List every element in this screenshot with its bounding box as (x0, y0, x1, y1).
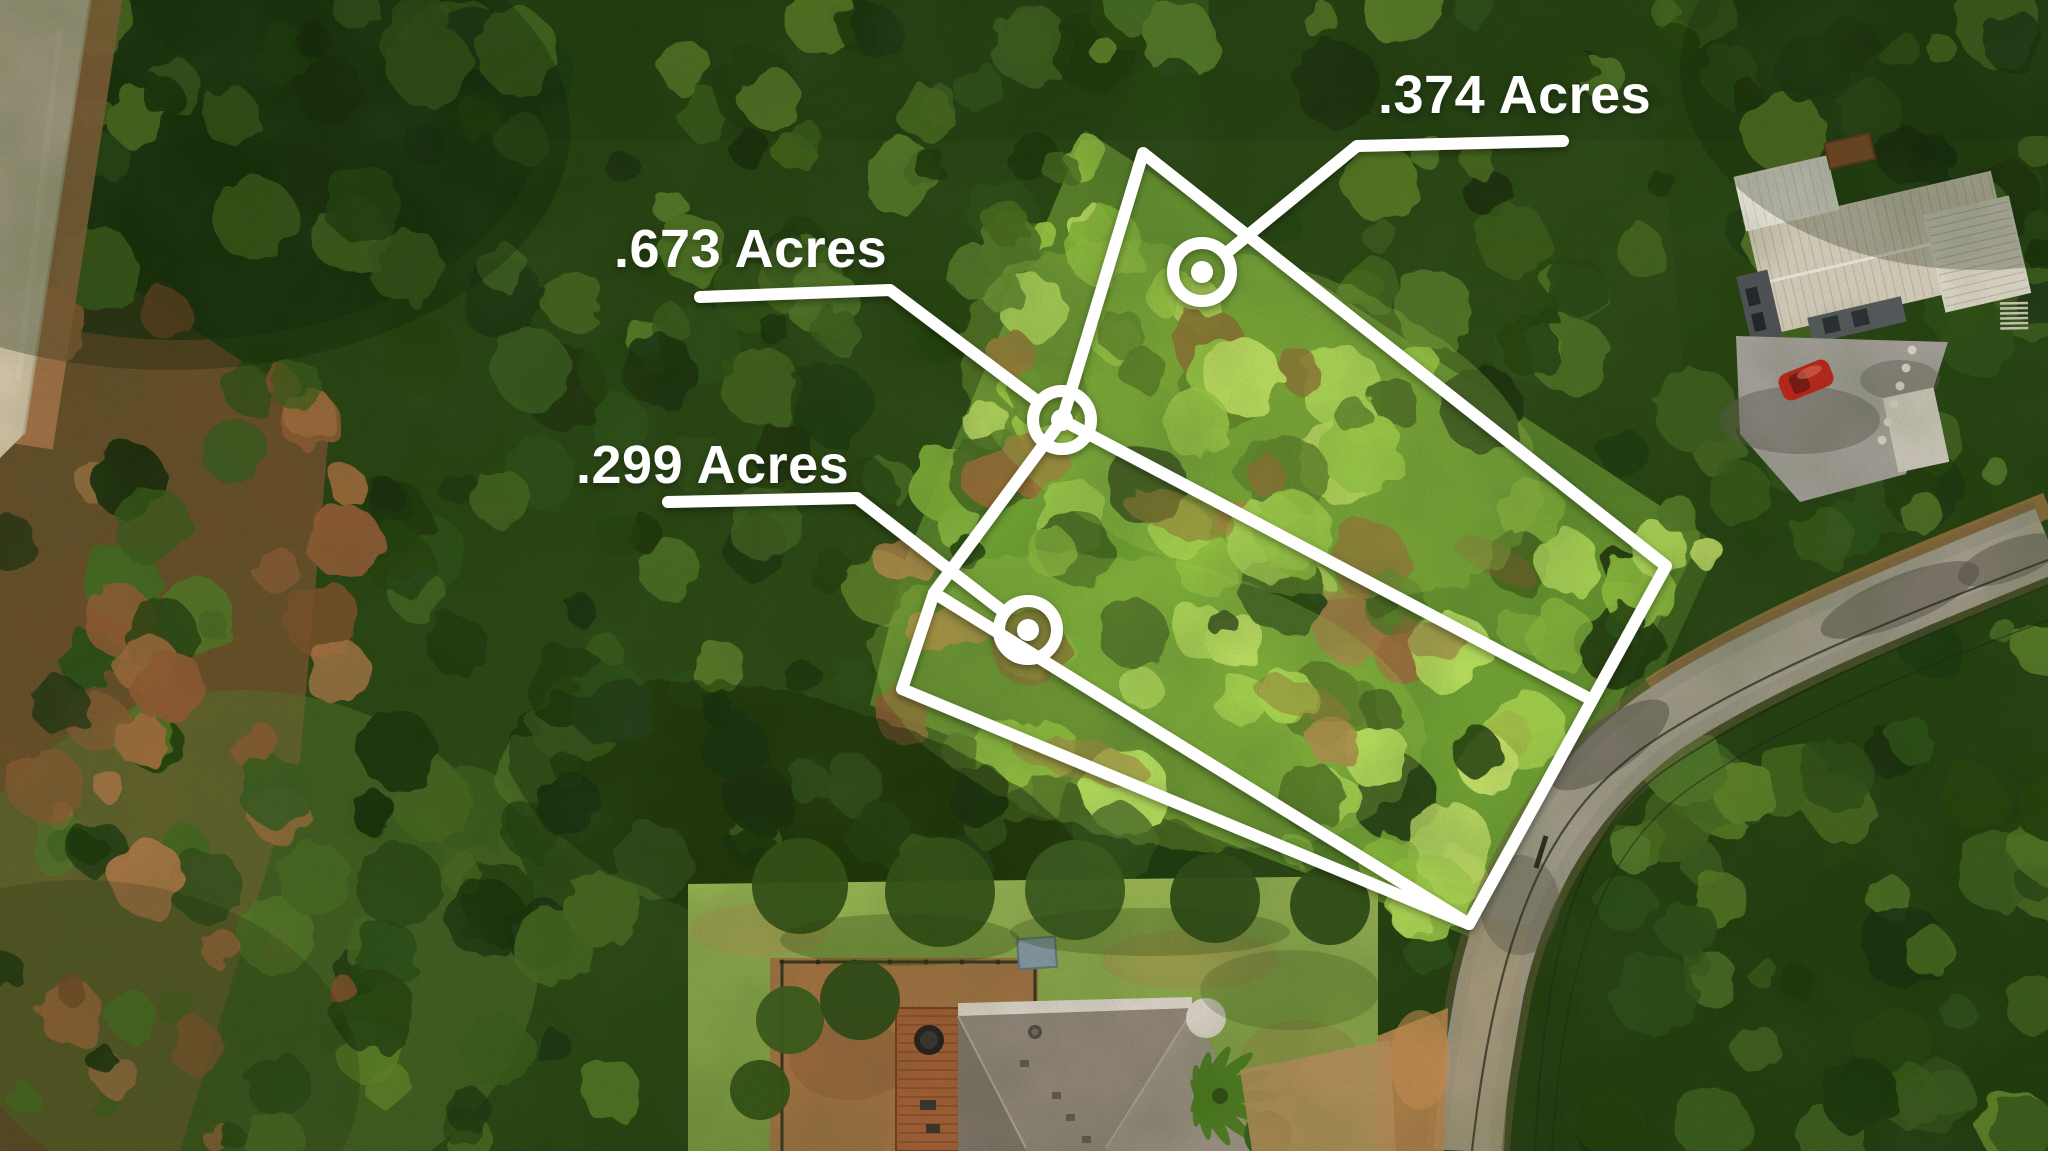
aerial-photo-canvas: .374 Acres .673 Acres .299 Acres (0, 0, 2048, 1151)
lot-label-299: .299 Acres (576, 435, 849, 495)
photo-texture (0, 0, 2048, 1151)
marker-dot-icon (1017, 619, 1039, 641)
lot-label-374: .374 Acres (1378, 65, 1651, 125)
marker-dot-icon (1191, 261, 1213, 283)
marker-dot-icon (1051, 409, 1073, 431)
aerial-photo: .374 Acres .673 Acres .299 Acres (0, 0, 2048, 1151)
lot-label-673: .673 Acres (614, 219, 887, 279)
